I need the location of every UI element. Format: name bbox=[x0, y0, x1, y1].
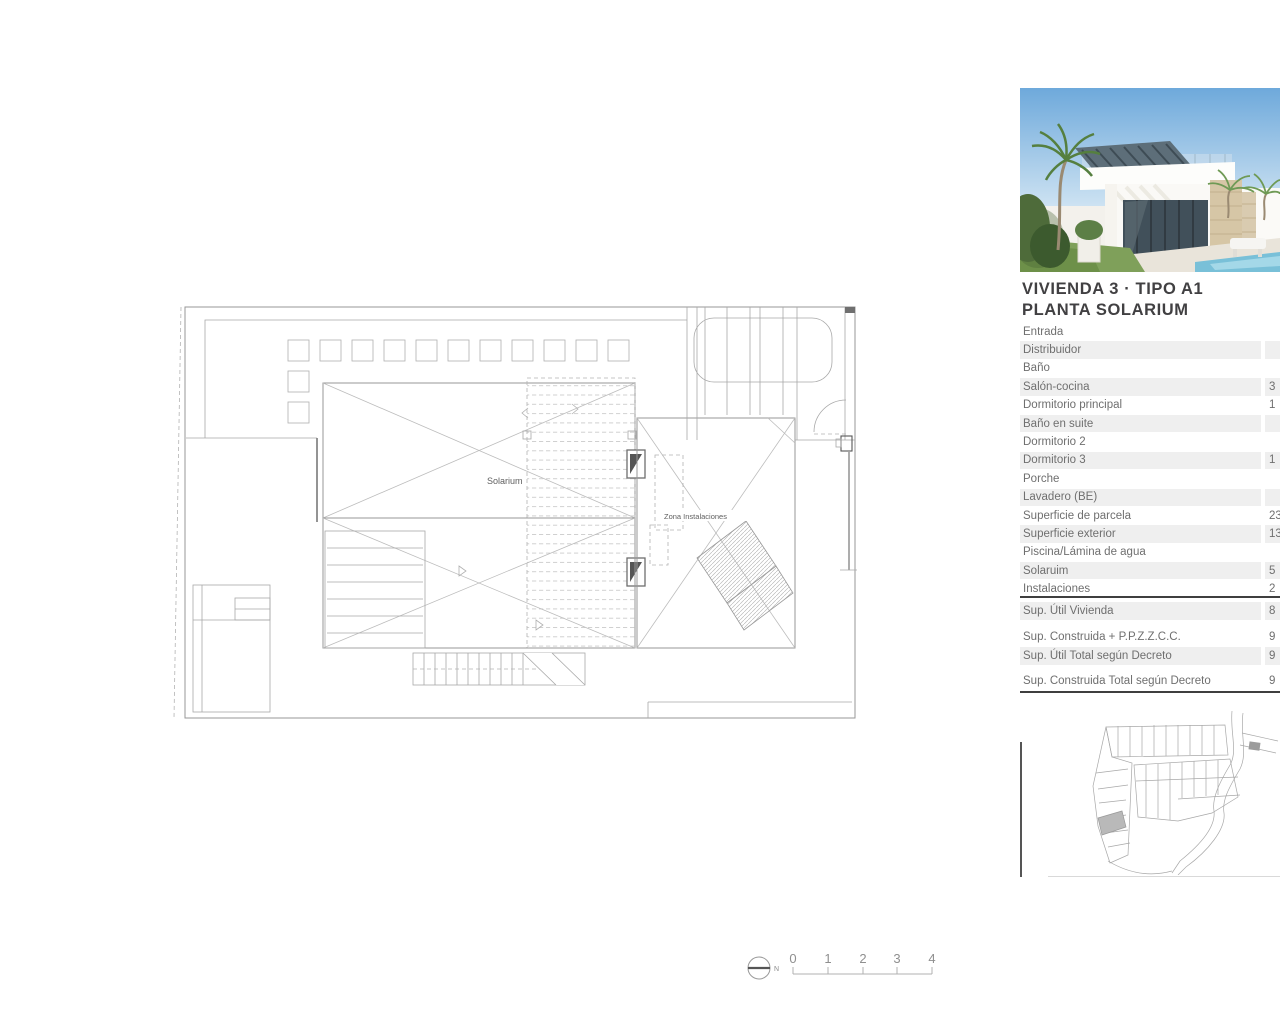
table-row: Superficie de parcela 23 bbox=[1020, 507, 1280, 524]
room-label: Lavadero (BE) bbox=[1020, 489, 1261, 506]
siteplan-left-plots bbox=[1093, 727, 1132, 863]
compass-and-scale: N 0 1 2 3 4 bbox=[735, 940, 945, 990]
summary-table: Sup. Útil Vivienda 8 Sup. Construida + P… bbox=[1020, 602, 1280, 691]
title-line-2: PLANTA SOLARIUM bbox=[1022, 300, 1280, 321]
table-row: Dormitorio 3 1 bbox=[1020, 452, 1280, 469]
scale-tick-2: 2 bbox=[859, 951, 866, 966]
summary-value: 9 bbox=[1265, 628, 1280, 646]
page-title: VIVIENDA 3 · TIPO A1 PLANTA SOLARIUM bbox=[1022, 279, 1280, 321]
room-value: 13 bbox=[1265, 525, 1280, 542]
siteplan-top-plots bbox=[1106, 725, 1228, 757]
room-label: Dormitorio 3 bbox=[1020, 452, 1261, 469]
room-label: Porche bbox=[1020, 470, 1261, 487]
auxiliary-structure bbox=[193, 585, 270, 712]
room-value: 1 bbox=[1265, 397, 1280, 414]
summary-label: Sup. Útil Total según Decreto bbox=[1020, 647, 1261, 665]
room-value bbox=[1265, 341, 1280, 358]
table-row: Solaruim 5 bbox=[1020, 562, 1280, 579]
summary-value: 9 bbox=[1265, 647, 1280, 665]
room-label: Distribuidor bbox=[1020, 341, 1261, 358]
room-label: Baño bbox=[1020, 360, 1261, 377]
table-row: Lavadero (BE) bbox=[1020, 489, 1280, 506]
table-row: Sup. Construida + P.P.Z.Z.C.C. 9 bbox=[1020, 628, 1280, 646]
table-row: Salón-cocina 3 bbox=[1020, 378, 1280, 395]
highlighted-parcel bbox=[1098, 811, 1126, 835]
table-row: Sup. Útil Total según Decreto 9 bbox=[1020, 647, 1280, 665]
car-outline bbox=[694, 318, 832, 382]
instalaciones-area: Zona Instalaciones bbox=[637, 418, 795, 648]
room-value: 1 bbox=[1265, 452, 1280, 469]
room-label: Dormitorio principal bbox=[1020, 397, 1261, 414]
floor-plan-drawing: Solarium Zona In bbox=[160, 290, 870, 730]
scale-tick-4: 4 bbox=[928, 951, 935, 966]
north-label: N bbox=[774, 966, 779, 973]
table-row: Dormitorio 2 bbox=[1020, 433, 1280, 450]
table-row: Sup. Construida Total según Decreto 9 bbox=[1020, 672, 1280, 690]
table-row: Piscina/Lámina de agua bbox=[1020, 544, 1280, 561]
room-value: 5 bbox=[1265, 562, 1280, 579]
siteplan-bottom-border bbox=[1048, 876, 1280, 877]
scale-tick-1: 1 bbox=[824, 951, 831, 966]
room-value bbox=[1265, 470, 1280, 487]
scale-tick-3: 3 bbox=[893, 951, 900, 966]
scale-bar: 0 1 2 3 4 bbox=[789, 951, 935, 974]
room-value bbox=[1265, 415, 1280, 432]
room-label: Superficie exterior bbox=[1020, 525, 1261, 542]
table-row: Dormitorio principal 1 bbox=[1020, 397, 1280, 414]
instalaciones-label: Zona Instalaciones bbox=[664, 512, 727, 521]
solarium-label: Solarium bbox=[487, 476, 523, 486]
table-row: Porche bbox=[1020, 470, 1280, 487]
summary-label: Sup. Útil Vivienda bbox=[1020, 602, 1261, 620]
room-label: Solaruim bbox=[1020, 562, 1261, 579]
scale-tick-0: 0 bbox=[789, 951, 796, 966]
plan-sheet-page: { "panel": { "title_line1": "VIVIENDA 3 … bbox=[0, 0, 1280, 1024]
table-row: Superficie exterior 13 bbox=[1020, 525, 1280, 542]
room-label: Piscina/Lámina de agua bbox=[1020, 544, 1261, 561]
bottom-inner-wall bbox=[648, 702, 852, 718]
villa-render-image bbox=[1020, 88, 1280, 272]
summary-label: Sup. Construida + P.P.Z.Z.C.C. bbox=[1020, 628, 1261, 646]
siteplan-roads bbox=[1108, 711, 1278, 875]
summary-label: Sup. Construida Total según Decreto bbox=[1020, 672, 1261, 690]
room-value bbox=[1265, 360, 1280, 377]
table-row: Sup. Útil Vivienda 8 bbox=[1020, 602, 1280, 620]
room-area-table: Entrada Distribuidor Baño Salón-cocina 3… bbox=[1020, 323, 1280, 599]
table-row: Entrada bbox=[1020, 323, 1280, 340]
room-value bbox=[1265, 323, 1280, 340]
table-row: Baño en suite bbox=[1020, 415, 1280, 432]
table-row: Distribuidor bbox=[1020, 341, 1280, 358]
door-swing-arc bbox=[814, 400, 846, 432]
summary-value: 8 bbox=[1265, 602, 1280, 620]
room-value: 3 bbox=[1265, 378, 1280, 395]
room-value: 23 bbox=[1265, 507, 1280, 524]
summary-value: 9 bbox=[1265, 672, 1280, 690]
site-plan-map bbox=[1080, 703, 1280, 875]
room-label: Superficie de parcela bbox=[1020, 507, 1261, 524]
summary-bottom-rule bbox=[1020, 691, 1280, 693]
parking-area bbox=[687, 307, 832, 440]
room-label: Dormitorio 2 bbox=[1020, 433, 1261, 450]
room-label: Baño en suite bbox=[1020, 415, 1261, 432]
room-label: Salón-cocina bbox=[1020, 378, 1261, 395]
table-divider-rule bbox=[1020, 596, 1280, 598]
room-value bbox=[1265, 544, 1280, 561]
road-entry-marker bbox=[1248, 741, 1260, 750]
north-compass-icon: N bbox=[748, 957, 779, 979]
siteplan-left-border bbox=[1020, 742, 1022, 877]
right-wall-entrance bbox=[795, 307, 857, 570]
title-line-1: VIVIENDA 3 · TIPO A1 bbox=[1022, 279, 1280, 300]
stairs bbox=[413, 653, 585, 685]
room-value bbox=[1265, 489, 1280, 506]
central-slat-band bbox=[523, 378, 645, 648]
table-row: Baño bbox=[1020, 360, 1280, 377]
room-value bbox=[1265, 433, 1280, 450]
room-label: Entrada bbox=[1020, 323, 1261, 340]
